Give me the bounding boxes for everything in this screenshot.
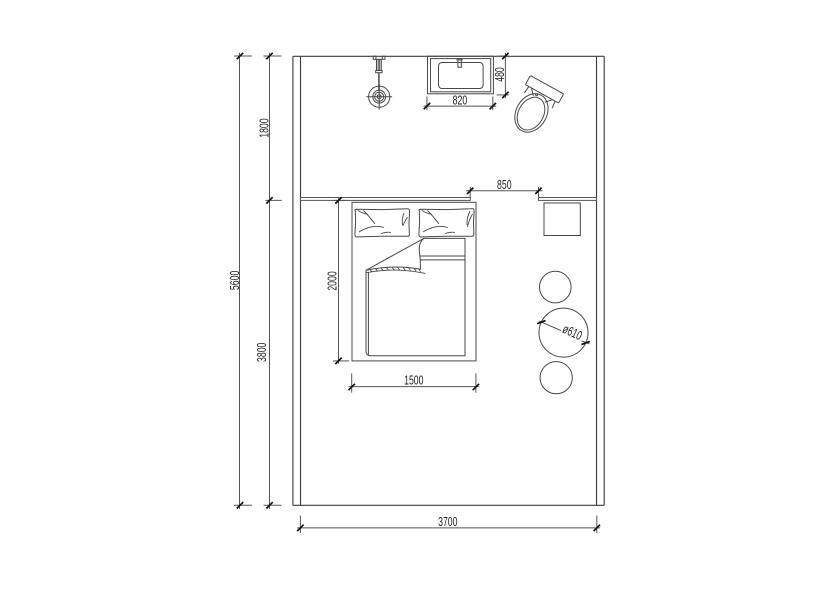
svg-text:1800: 1800	[258, 118, 272, 137]
svg-text:480: 480	[493, 67, 507, 82]
svg-text:2000: 2000	[326, 271, 340, 290]
svg-text:1500: 1500	[404, 374, 423, 388]
svg-text:850: 850	[497, 178, 512, 192]
svg-text:5600: 5600	[229, 271, 243, 290]
svg-text:3700: 3700	[438, 515, 457, 529]
svg-text:820: 820	[453, 94, 468, 108]
svg-text:3800: 3800	[256, 343, 270, 362]
